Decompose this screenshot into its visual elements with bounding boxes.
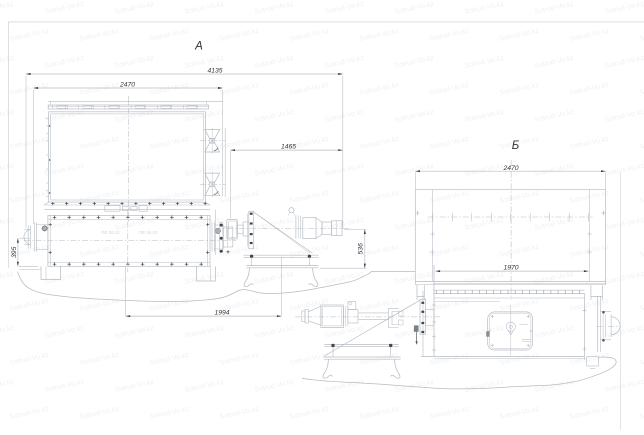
svg-text:ПВ 06.02: ПВ 06.02 xyxy=(138,230,158,235)
svg-text:2470: 2470 xyxy=(502,165,518,172)
svg-text:1465: 1465 xyxy=(281,144,296,151)
svg-text:4135: 4135 xyxy=(207,68,222,75)
svg-text:395: 395 xyxy=(11,246,18,258)
svg-text:ПВ 06.01: ПВ 06.01 xyxy=(101,230,121,235)
svg-text:536: 536 xyxy=(357,243,364,255)
svg-text:1994: 1994 xyxy=(214,310,229,317)
svg-text:Б: Б xyxy=(512,140,520,152)
svg-text:1970: 1970 xyxy=(503,265,518,272)
svg-text:2470: 2470 xyxy=(119,82,135,89)
svg-text:А: А xyxy=(194,41,203,53)
